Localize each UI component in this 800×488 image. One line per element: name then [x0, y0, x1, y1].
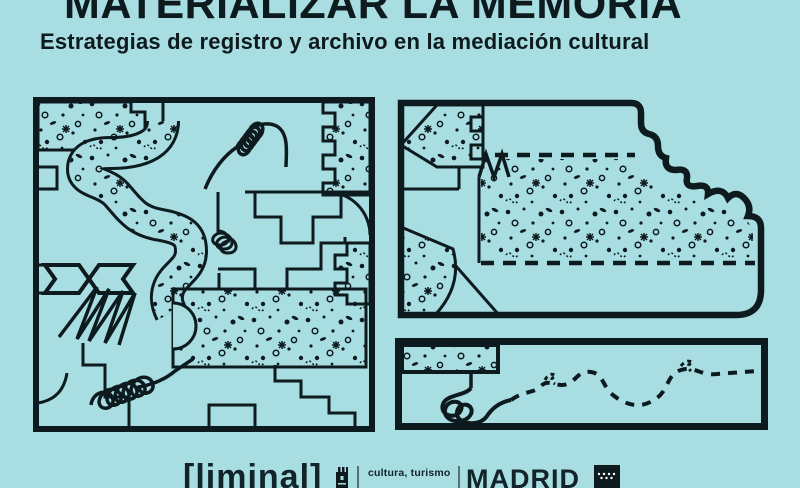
map-collage-left-illustration [33, 97, 375, 432]
footer-divider [357, 466, 359, 488]
dashed-path-drawing [395, 338, 768, 430]
footer-divider [458, 466, 460, 488]
department-label: cultura, turismo [368, 467, 451, 479]
poster-subtitle: Estrategias de registro y archivo en la … [40, 29, 649, 55]
map-collage-top-right-drawing [395, 97, 768, 322]
map-collage-left-drawing [33, 97, 375, 432]
poster-title: MATERIALIZAR LA MEMORIA [64, 0, 682, 26]
liminal-logo: [liminal] [183, 459, 322, 488]
madrid-wordmark: MADRID [466, 465, 580, 488]
madrid-destino-icon [594, 465, 620, 488]
dashed-path-illustration [395, 338, 768, 430]
map-collage-top-right-illustration [395, 97, 768, 322]
madrid-castle-icon [334, 464, 350, 488]
event-poster: MATERIALIZAR LA MEMORIA Estrategias de r… [0, 0, 800, 488]
